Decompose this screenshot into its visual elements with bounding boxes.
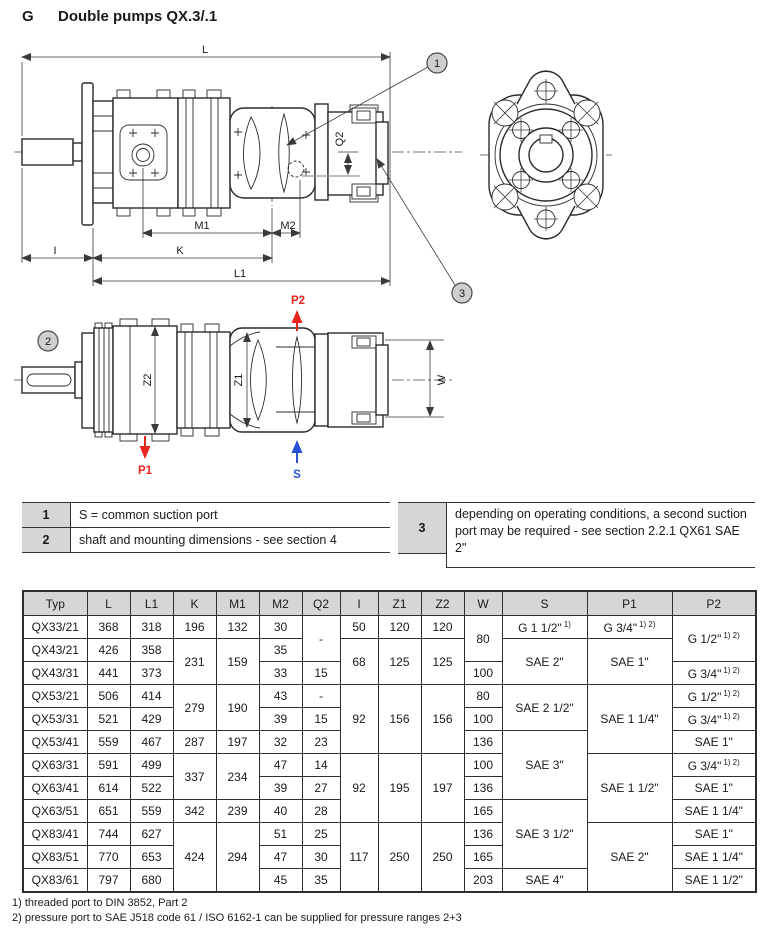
table-cell: SAE 1 1/4" bbox=[672, 846, 756, 869]
table-cell: SAE 1 1/2" bbox=[672, 869, 756, 893]
table-cell: G 1/2"1) 2) bbox=[672, 685, 756, 708]
table-cell: G 3/4"1) 2) bbox=[587, 616, 672, 639]
footnote-marker: 1) 2) bbox=[639, 620, 655, 629]
dim-label-W: W bbox=[436, 374, 448, 385]
table-cell: 279 bbox=[173, 685, 216, 731]
table-cell: 197 bbox=[421, 754, 464, 823]
table-cell: 51 bbox=[259, 823, 302, 846]
dim-label-K: K bbox=[176, 245, 184, 257]
table-cell: 318 bbox=[130, 616, 173, 639]
table-cell: - bbox=[302, 616, 340, 662]
table-cell: 136 bbox=[464, 731, 502, 754]
technical-drawings: L M1 M2 I K L1 Q2 1 3 bbox=[0, 0, 765, 492]
note-number: 3 bbox=[398, 503, 446, 554]
table-cell: 15 bbox=[302, 708, 340, 731]
table-cell: 426 bbox=[87, 639, 130, 662]
note-text: depending on operating conditions, a sec… bbox=[446, 503, 755, 568]
table-cell: SAE 1 1/4" bbox=[587, 685, 672, 754]
table-cell: QX63/31 bbox=[23, 754, 87, 777]
table-cell: 342 bbox=[173, 800, 216, 823]
table-cell: 40 bbox=[259, 800, 302, 823]
table-cell: 92 bbox=[340, 685, 378, 754]
table-cell: SAE 1 1/4" bbox=[672, 800, 756, 823]
dim-label-M1: M1 bbox=[194, 220, 209, 232]
table-cell: 45 bbox=[259, 869, 302, 893]
table-cell: 770 bbox=[87, 846, 130, 869]
footnote-marker: 1) 2) bbox=[723, 631, 739, 640]
table-cell: 506 bbox=[87, 685, 130, 708]
table-cell: 33 bbox=[259, 662, 302, 685]
callout-3-number: 3 bbox=[459, 288, 465, 300]
table-cell: 120 bbox=[378, 616, 421, 639]
header-row: TypLL1KM1M2Q2IZ1Z2WSP1P2 bbox=[23, 591, 756, 616]
port-label-S: S bbox=[293, 469, 301, 481]
table-cell: QX53/41 bbox=[23, 731, 87, 754]
table-cell: SAE 2" bbox=[502, 639, 587, 685]
footnote-marker: 1) 2) bbox=[723, 712, 739, 721]
callout-2-number: 2 bbox=[45, 336, 51, 348]
table-row: QX53/2150641427919043-9215615680SAE 2 1/… bbox=[23, 685, 756, 708]
table-cell: QX63/51 bbox=[23, 800, 87, 823]
table-cell: 100 bbox=[464, 754, 502, 777]
table-cell: 27 bbox=[302, 777, 340, 800]
table-cell: 30 bbox=[259, 616, 302, 639]
side-view-drawing: L M1 M2 I K L1 Q2 1 3 bbox=[14, 44, 472, 303]
table-cell: G 1 1/2"1) bbox=[502, 616, 587, 639]
table-cell: 467 bbox=[130, 731, 173, 754]
table-header-cell: L1 bbox=[130, 591, 173, 616]
table-cell: 195 bbox=[378, 754, 421, 823]
table-cell: 125 bbox=[421, 639, 464, 685]
table-cell: 651 bbox=[87, 800, 130, 823]
table-cell: 231 bbox=[173, 639, 216, 685]
table-cell: 156 bbox=[421, 685, 464, 754]
table-cell: 627 bbox=[130, 823, 173, 846]
table-cell: 39 bbox=[259, 708, 302, 731]
table-cell: 373 bbox=[130, 662, 173, 685]
table-cell: 414 bbox=[130, 685, 173, 708]
footnote-marker: 1) 2) bbox=[723, 758, 739, 767]
table-cell: SAE 2" bbox=[587, 823, 672, 893]
datasheet-page: G Double pumps QX.3/.1 bbox=[0, 0, 765, 936]
table-header-cell: K bbox=[173, 591, 216, 616]
table-cell: 136 bbox=[464, 777, 502, 800]
table-cell: 368 bbox=[87, 616, 130, 639]
table-row: QX33/2136831819613230-5012012080G 1 1/2"… bbox=[23, 616, 756, 639]
table-header-cell: P2 bbox=[672, 591, 756, 616]
table-cell: 136 bbox=[464, 823, 502, 846]
table-cell: 250 bbox=[378, 823, 421, 893]
table-row: QX43/214263582311593568125125SAE 2"SAE 1… bbox=[23, 639, 756, 662]
table-cell: 68 bbox=[340, 639, 378, 685]
table-cell: 250 bbox=[421, 823, 464, 893]
table-header-cell: P1 bbox=[587, 591, 672, 616]
dim-label-I: I bbox=[53, 245, 56, 257]
table-cell: 559 bbox=[87, 731, 130, 754]
table-cell: 337 bbox=[173, 754, 216, 800]
table-cell: 165 bbox=[464, 800, 502, 823]
note-number: 1 bbox=[22, 503, 70, 527]
footnote-marker: 1) 2) bbox=[723, 689, 739, 698]
callout-1-number: 1 bbox=[434, 58, 440, 70]
table-cell: 80 bbox=[464, 685, 502, 708]
table-cell: 499 bbox=[130, 754, 173, 777]
flange-view-drawing bbox=[480, 70, 612, 240]
note-text: shaft and mounting dimensions - see sect… bbox=[70, 528, 390, 552]
table-cell: 14 bbox=[302, 754, 340, 777]
table-cell: QX43/21 bbox=[23, 639, 87, 662]
table-header-cell: S bbox=[502, 591, 587, 616]
table-cell: 294 bbox=[216, 823, 259, 893]
table-cell: 190 bbox=[216, 685, 259, 731]
table-cell: 239 bbox=[216, 800, 259, 823]
table-cell: SAE 1" bbox=[672, 731, 756, 754]
table-cell: 80 bbox=[464, 616, 502, 662]
notes-table-right: 3 depending on operating conditions, a s… bbox=[398, 502, 755, 568]
table-cell: QX83/51 bbox=[23, 846, 87, 869]
footnote-marker: 1) 2) bbox=[723, 666, 739, 675]
table-cell: 358 bbox=[130, 639, 173, 662]
table-cell: 117 bbox=[340, 823, 378, 893]
table-cell: 50 bbox=[340, 616, 378, 639]
table-cell: QX53/31 bbox=[23, 708, 87, 731]
table-cell: 165 bbox=[464, 846, 502, 869]
table-cell: 197 bbox=[216, 731, 259, 754]
table-cell: SAE 4" bbox=[502, 869, 587, 893]
table-header-cell: W bbox=[464, 591, 502, 616]
table-cell: 429 bbox=[130, 708, 173, 731]
table-cell: 43 bbox=[259, 685, 302, 708]
table-cell: 35 bbox=[302, 869, 340, 893]
table-cell: 39 bbox=[259, 777, 302, 800]
port-label-P1: P1 bbox=[138, 465, 153, 477]
top-view-drawing: Z2 Z1 W P2 P1 S 2 bbox=[14, 295, 455, 481]
table-header-cell: I bbox=[340, 591, 378, 616]
footnote-marker: 1) bbox=[564, 620, 571, 629]
table-cell: QX63/41 bbox=[23, 777, 87, 800]
table-cell: 744 bbox=[87, 823, 130, 846]
table-cell: - bbox=[302, 685, 340, 708]
table-cell: SAE 2 1/2" bbox=[502, 685, 587, 731]
dimension-table-head: TypLL1KM1M2Q2IZ1Z2WSP1P2 bbox=[23, 591, 756, 616]
table-cell: SAE 1" bbox=[587, 639, 672, 685]
dim-label-M2: M2 bbox=[280, 220, 295, 232]
table-cell: QX43/31 bbox=[23, 662, 87, 685]
table-cell: 559 bbox=[130, 800, 173, 823]
footnote-2: 2) pressure port to SAE J518 code 61 / I… bbox=[12, 912, 462, 924]
table-cell: 92 bbox=[340, 754, 378, 823]
table-cell: SAE 1 1/2" bbox=[587, 754, 672, 823]
table-cell: 120 bbox=[421, 616, 464, 639]
table-cell: SAE 3" bbox=[502, 731, 587, 800]
table-cell: 32 bbox=[259, 731, 302, 754]
table-cell: 591 bbox=[87, 754, 130, 777]
table-cell: 196 bbox=[173, 616, 216, 639]
footnote-1: 1) threaded port to DIN 3852, Part 2 bbox=[12, 897, 188, 909]
table-header-cell: Z1 bbox=[378, 591, 421, 616]
table-cell: 35 bbox=[259, 639, 302, 662]
dim-label-Z2: Z2 bbox=[142, 374, 154, 387]
table-header-cell: M2 bbox=[259, 591, 302, 616]
table-cell: SAE 3 1/2" bbox=[502, 800, 587, 869]
table-cell: 100 bbox=[464, 708, 502, 731]
table-cell: 28 bbox=[302, 800, 340, 823]
table-cell: 522 bbox=[130, 777, 173, 800]
table-header-cell: M1 bbox=[216, 591, 259, 616]
note-row-2: 2 shaft and mounting dimensions - see se… bbox=[22, 528, 390, 553]
note-row-1: 1 S = common suction port bbox=[22, 502, 390, 528]
dim-label-Q2: Q2 bbox=[334, 132, 346, 147]
table-cell: QX53/21 bbox=[23, 685, 87, 708]
table-cell: 47 bbox=[259, 754, 302, 777]
notes-table-left: 1 S = common suction port 2 shaft and mo… bbox=[22, 502, 390, 553]
table-cell: QX83/61 bbox=[23, 869, 87, 893]
table-cell: 653 bbox=[130, 846, 173, 869]
table-cell: 234 bbox=[216, 754, 259, 800]
table-header-cell: Z2 bbox=[421, 591, 464, 616]
table-cell: 25 bbox=[302, 823, 340, 846]
table-cell: 203 bbox=[464, 869, 502, 893]
table-header-cell: Q2 bbox=[302, 591, 340, 616]
table-header-cell: L bbox=[87, 591, 130, 616]
note-text: S = common suction port bbox=[70, 503, 390, 527]
table-cell: G 1/2"1) 2) bbox=[672, 616, 756, 662]
dim-label-L: L bbox=[202, 44, 208, 56]
table-row: QX63/31591499337234471492195197100SAE 1 … bbox=[23, 754, 756, 777]
table-cell: 287 bbox=[173, 731, 216, 754]
table-cell: 521 bbox=[87, 708, 130, 731]
table-cell: 159 bbox=[216, 639, 259, 685]
table-cell: 15 bbox=[302, 662, 340, 685]
table-cell: 100 bbox=[464, 662, 502, 685]
note-number: 2 bbox=[22, 528, 70, 552]
table-cell: 424 bbox=[173, 823, 216, 893]
table-cell: G 3/4"1) 2) bbox=[672, 708, 756, 731]
table-cell: 441 bbox=[87, 662, 130, 685]
dim-label-L1: L1 bbox=[234, 268, 246, 280]
table-cell: QX83/41 bbox=[23, 823, 87, 846]
table-cell: G 3/4"1) 2) bbox=[672, 754, 756, 777]
table-row: QX83/417446274242945125117250250136SAE 2… bbox=[23, 823, 756, 846]
table-cell: 156 bbox=[378, 685, 421, 754]
table-cell: 680 bbox=[130, 869, 173, 893]
table-cell: 614 bbox=[87, 777, 130, 800]
note-row-3: 3 depending on operating conditions, a s… bbox=[398, 502, 755, 568]
table-cell: 23 bbox=[302, 731, 340, 754]
table-cell: 47 bbox=[259, 846, 302, 869]
dimension-table: TypLL1KM1M2Q2IZ1Z2WSP1P2 QX33/2136831819… bbox=[22, 590, 757, 893]
dim-label-Z1: Z1 bbox=[233, 374, 245, 387]
table-cell: SAE 1" bbox=[672, 823, 756, 846]
table-cell: QX33/21 bbox=[23, 616, 87, 639]
table-cell: G 3/4"1) 2) bbox=[672, 662, 756, 685]
table-cell: 797 bbox=[87, 869, 130, 893]
table-cell: 132 bbox=[216, 616, 259, 639]
table-header-cell: Typ bbox=[23, 591, 87, 616]
dimension-table-body: QX33/2136831819613230-5012012080G 1 1/2"… bbox=[23, 616, 756, 893]
table-cell: SAE 1" bbox=[672, 777, 756, 800]
table-cell: 30 bbox=[302, 846, 340, 869]
table-cell: 125 bbox=[378, 639, 421, 685]
port-label-P2: P2 bbox=[291, 295, 305, 307]
